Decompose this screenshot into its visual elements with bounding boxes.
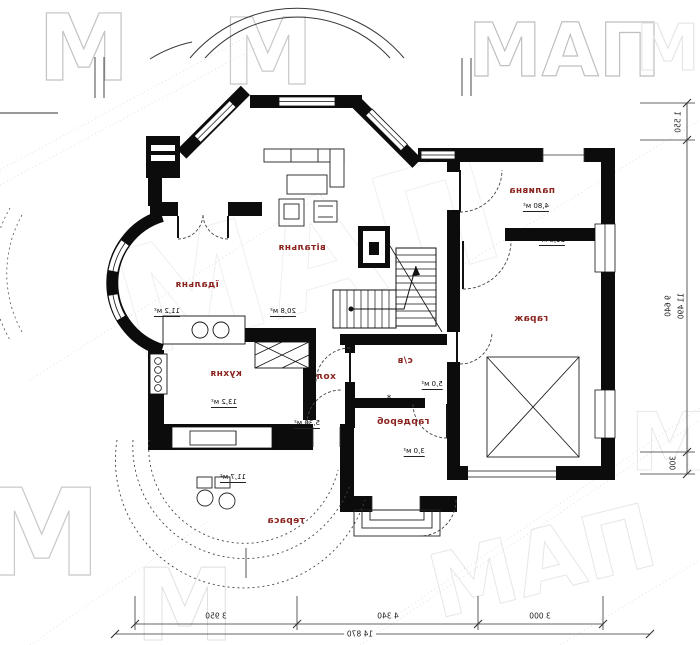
dim-bottom-1: 3 950 [205,612,226,621]
terrace [115,440,365,588]
room-label-wardrobe: гардероб [377,417,430,427]
area-label-boiler: 4,80 м² [523,202,549,212]
area-label-hall: 5,30 м² [294,419,320,429]
living-furniture [264,149,344,226]
dim-bottom-2: 4 340 [377,612,398,621]
bay-arc-wall [112,216,162,350]
canopy-arcs [150,8,404,59]
area-label-dining: 11,2 м² [154,307,180,317]
area-label-garage: 21,8 м² [539,236,565,246]
room-label-bathroom: с/в [397,356,413,366]
garage-markings [487,357,579,457]
fireplace [358,226,390,268]
room-label-hall: хол [316,372,336,382]
room-label-kitchen: кухня [210,369,242,379]
area-label-wardrobe: 3,0 м² [403,447,424,457]
room-label-dining: їдальня [175,280,219,290]
room-label-boiler: паливна [509,186,555,196]
area-label-bathroom: 5,0 м² [421,380,442,390]
bay-outside-arcs [0,208,22,340]
room-label-living: вітальня [278,243,326,253]
dim-right-total: 11 490 [677,293,686,319]
dim-right-1: 1 550 [674,111,683,132]
dim-right-3: 300 [669,456,678,470]
windows [172,97,615,448]
kitchen-fixtures [150,316,309,394]
area-label-living: 20,8 м² [270,307,296,317]
dim-bottom-3: 3 000 [529,612,550,621]
area-label-terrace: 11,7 м² [220,473,246,483]
area-label-kitchen: 13,2 м² [211,398,237,408]
plan-layer [0,0,700,645]
dim-bottom-total: 14 870 [344,630,376,639]
room-label-garage: гараж [514,314,548,324]
room-label-terrace: тераса [267,516,305,526]
floor-plan-canvas: М М МАП М М МАП МАП М М [0,0,700,645]
entry-steps [354,510,440,536]
dim-right-2: 9 640 [664,295,673,316]
note-star: * [387,394,392,404]
